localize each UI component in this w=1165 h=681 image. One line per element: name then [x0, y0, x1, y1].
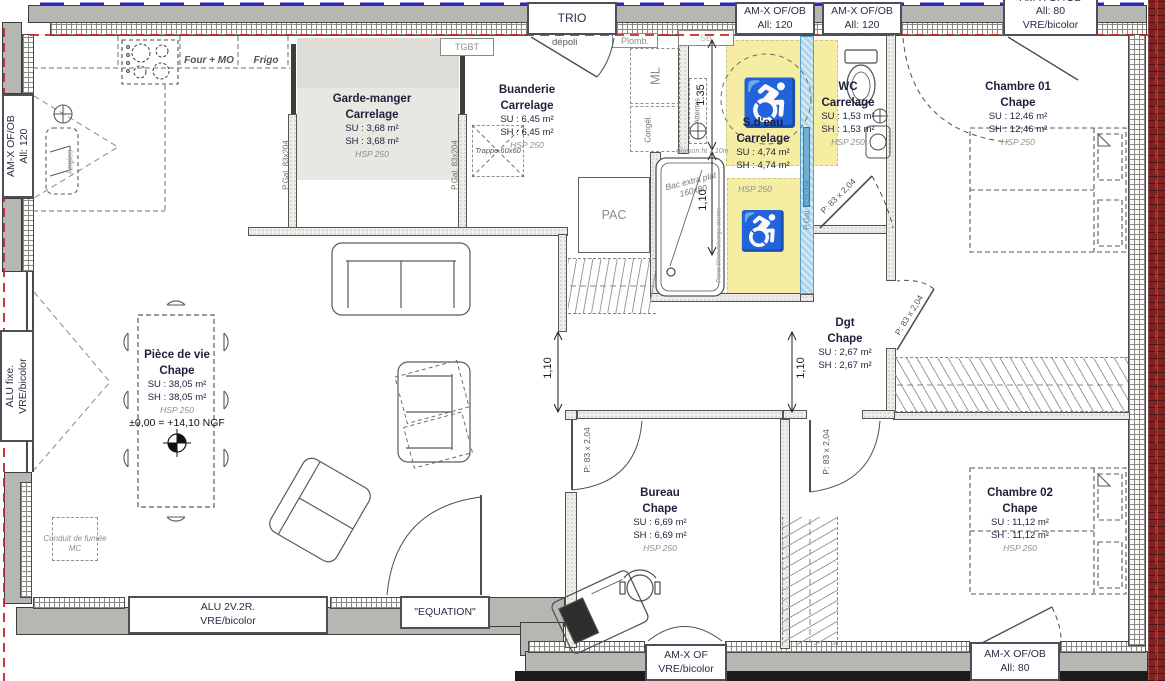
freezer-label: Congél. — [644, 115, 653, 143]
window-label-bottom-amx-ofob: AM-X OF/OB All: 80 — [970, 642, 1060, 681]
wall-bureau-west-stub — [565, 410, 577, 420]
cloison-label: Cloison ht 1,10m — [676, 148, 729, 155]
window-casement-indicators — [34, 96, 118, 470]
door-equation — [387, 495, 481, 595]
window-label-text: VRE/bicolor — [1023, 19, 1078, 33]
dim-110-sdeau: 1,10 — [697, 189, 709, 210]
window-label-text: TRIO — [558, 11, 587, 27]
window-label-text: All: 80 — [1036, 5, 1065, 19]
window-label-text: "EQUATION" — [414, 606, 476, 620]
window-label-text: ALU fixe. — [4, 332, 17, 440]
west-window-mid — [22, 198, 34, 272]
conduit-label: Conduit de fumée MC — [43, 534, 106, 555]
garde-manger-floor-top — [297, 38, 459, 88]
door-chambre02-exterior — [982, 607, 1061, 643]
window-label-text: All: 120 — [844, 19, 879, 33]
window-label-trio: TRIO — [527, 2, 617, 35]
window-label-left-amx: AM-X OF/OB All: 120 — [2, 94, 34, 198]
room-label-sdeau: S.d'eau Carrelage SU : 4,74 m² SH : 4,74… — [736, 116, 789, 173]
envelope-line-red — [4, 0, 1156, 681]
level-benchmark-icon — [163, 429, 191, 457]
depoli-label: dépoli — [552, 37, 577, 48]
door-label-p83-ch02: P: 83 x 2,04 — [821, 429, 831, 474]
room-label-dgt: Dgt Chape SU : 2,67 m² SH : 2,67 m² — [818, 316, 871, 373]
washer-label: ML — [648, 67, 663, 85]
door-label-pgal-left: P.Gal. 83x204 — [282, 140, 291, 190]
wheelchair-icon: ♿ — [739, 210, 786, 254]
angles-label: Angles — [66, 150, 75, 174]
window-label-text: AM-X OF/OB — [984, 648, 1046, 662]
door-label-p83-ch01: P: 83 x 2,04 — [893, 293, 926, 337]
dim-110-hall-right: 1,10 — [795, 357, 807, 378]
south-east-window-2 — [725, 641, 970, 653]
west-window-upper — [22, 34, 34, 94]
cooktop-icon — [122, 40, 178, 84]
south-west-window-2 — [330, 597, 402, 609]
office-chair — [620, 570, 660, 601]
wall-ch01-closet-south — [893, 412, 1130, 420]
window-label-text: All: 120 — [18, 96, 31, 196]
room-label-sdeau-hsp: HSP 250 — [738, 184, 772, 195]
sb-box: SB — [678, 30, 734, 46]
room-label-wc: WC Carrelage SU : 1,53 m² SH : 1,53 m² H… — [821, 80, 874, 148]
window-label-bottom-amx-of: AM-X OF VRE/bicolor — [645, 644, 727, 681]
door-label-pgal-right: P.Gal. 83x204 — [451, 140, 460, 190]
hall-closet — [568, 258, 656, 314]
window-label-text: AM-X OF/OB — [831, 5, 893, 19]
window-label-text: All: 80 — [1000, 662, 1029, 676]
level-annotation: ±0,00 = +14,10 NGF — [129, 416, 225, 430]
window-label-equation: "EQUATION" — [400, 596, 490, 629]
south-east-window-1 — [528, 641, 645, 653]
room-label-garde-manger: Garde-manger Carrelage SU : 3,68 m² SH :… — [333, 92, 412, 160]
window-label-top-amx-2: AM-X OF/OB All: 120 — [822, 2, 902, 35]
wall-ch02-north-2 — [862, 410, 895, 419]
sofa-side — [398, 362, 470, 462]
four-mo-label: Four + MO — [184, 55, 234, 66]
room-label-chambre01: Chambre 01 Chape SU : 12,46 m² SH : 12,4… — [985, 80, 1051, 148]
window-label-text: All: 120 — [757, 19, 792, 33]
window-label-text: VRE/bicolor — [17, 332, 30, 440]
room-label-bureau: Bureau Chape SU : 6,69 m² SH : 6,69 m² H… — [633, 486, 686, 554]
frigo-label: Frigo — [254, 55, 279, 66]
kitchen-counter-lines — [33, 36, 290, 212]
north-window-strip-left — [50, 22, 528, 36]
window-label-left-alu: ALU fixe. VRE/bicolor — [0, 330, 34, 442]
window-label-text: VRE/bicolor — [658, 663, 713, 677]
west-wall-upper — [2, 22, 22, 94]
chambre01-closet — [895, 357, 1128, 412]
door-amx-of-south — [648, 627, 722, 642]
east-window-strip — [1128, 34, 1146, 646]
bac-label: Bac extra plat 160x80 — [664, 170, 719, 202]
paroi-label: Paroi 90cm/charge cliente — [716, 207, 723, 282]
coffee-tables — [395, 361, 473, 469]
wall-sdeau-south — [650, 293, 813, 302]
wall-bureau-north — [577, 410, 783, 419]
door-label-p83-bureau: P: 83 x 2,04 — [582, 427, 592, 472]
wall-hall-left — [558, 234, 567, 332]
wall-bureau-west — [565, 492, 577, 648]
window-label-text: AM-X OF/OB — [744, 5, 806, 19]
wall-wc-ch01 — [886, 33, 896, 281]
wall-wc-south — [813, 225, 895, 234]
window-label-top-amx-1: AM-X OF/OB All: 120 — [735, 2, 815, 35]
armchair — [266, 455, 374, 566]
wall-living-north — [248, 227, 568, 236]
freezer-box — [630, 106, 680, 152]
dim-110-hall-left: 1,10 — [542, 357, 554, 378]
window-label-text: ALU 2V.2R. — [201, 601, 255, 615]
window-label-bottom-alu: ALU 2V.2R. VRE/bicolor — [128, 596, 328, 634]
plomb-box: Plomb. — [612, 33, 658, 48]
door-label-pgal-pocket: P.Gal. 83x204 — [803, 180, 812, 230]
sofa-top — [332, 243, 470, 315]
wall-pocket-stub — [800, 294, 814, 302]
door-label-p83-wc: P: 83 x 2,04 — [818, 176, 857, 215]
window-label-top-right: AM-X OF/OB All: 80 VRE/bicolor — [1003, 0, 1098, 36]
pac-label: PAC — [602, 208, 627, 222]
chambre02-closet — [782, 517, 838, 645]
south-black-band — [515, 671, 1165, 681]
wall-ch02-north-1 — [783, 410, 807, 419]
floor-plan: PAC — [0, 0, 1165, 681]
window-label-text: VRE/bicolor — [200, 615, 255, 629]
garde-manger-slider-left — [291, 44, 296, 114]
tgbt-box: TGBT — [440, 38, 494, 56]
west-wall-mid — [2, 198, 22, 272]
window-label-text: AM-X OF — [664, 649, 708, 663]
dim-135: 1.35 — [695, 84, 707, 105]
west-window-lower — [20, 482, 32, 598]
room-label-piece-de-vie: Pièce de vie Chape SU : 38,05 m² SH : 38… — [129, 348, 225, 430]
pac-unit: PAC — [578, 177, 650, 253]
room-label-chambre02: Chambre 02 Chape SU : 11,12 m² SH : 11,1… — [987, 486, 1053, 554]
south-west-window-1 — [33, 597, 125, 609]
east-brick-band — [1148, 0, 1165, 681]
window-label-text: AM-X OF/OB — [5, 96, 18, 196]
room-label-buanderie: Buanderie Carrelage SU : 6,45 m² SH : 6,… — [499, 83, 555, 151]
